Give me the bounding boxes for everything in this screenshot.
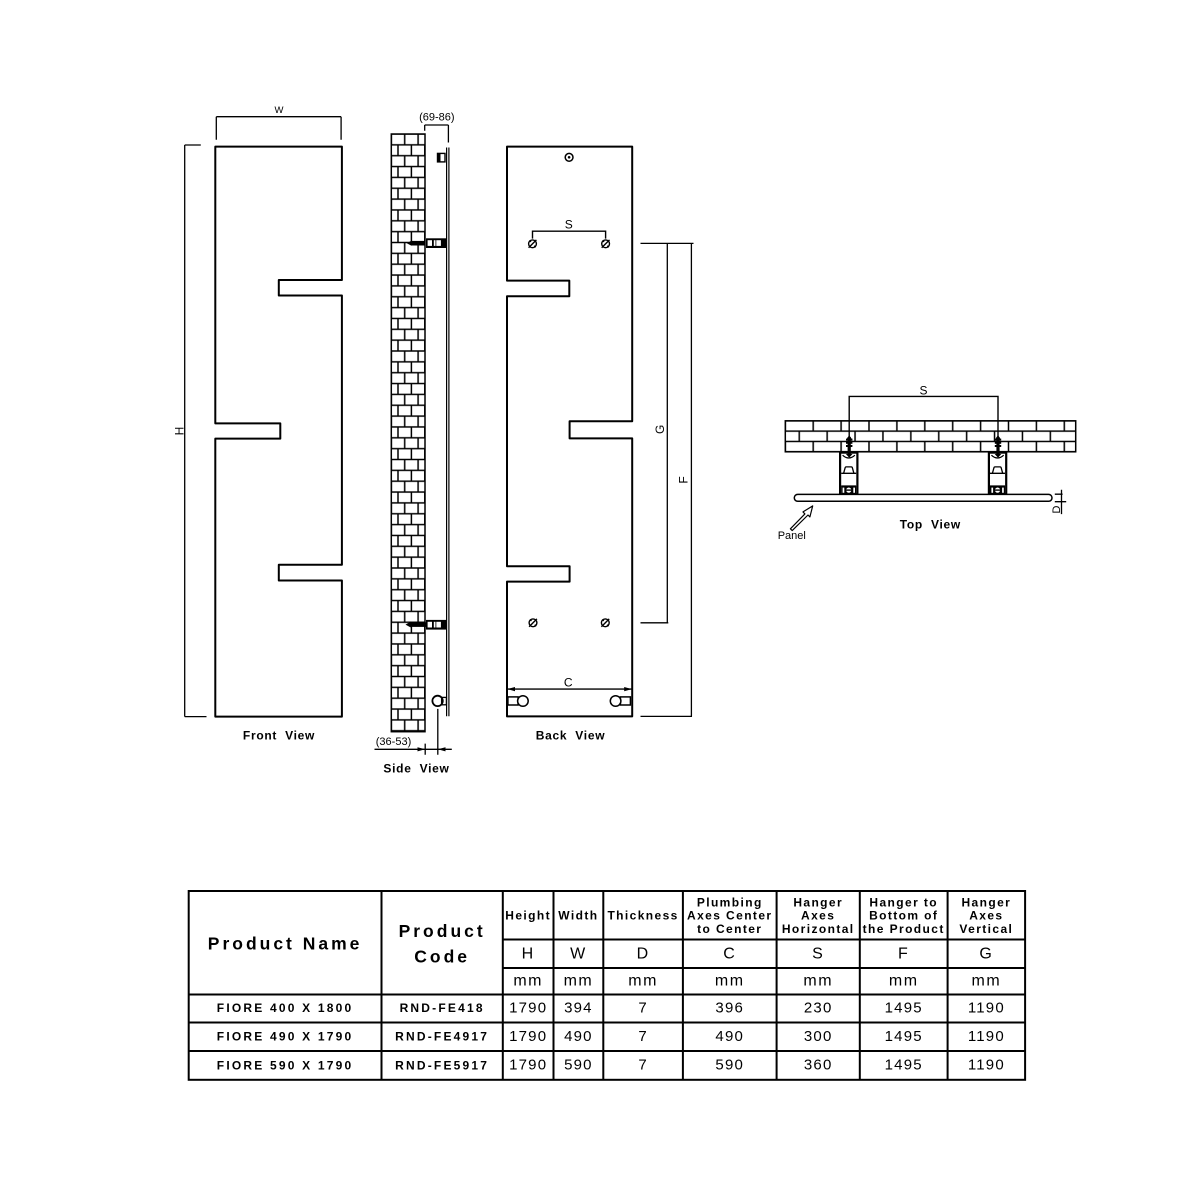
svg-text:1190: 1190 (968, 1028, 1005, 1045)
svg-text:FIORE 490 X 1790: FIORE 490 X 1790 (217, 1030, 354, 1044)
svg-text:Plumbing: Plumbing (697, 895, 763, 909)
svg-text:230: 230 (804, 999, 833, 1016)
svg-text:H: H (172, 427, 186, 436)
svg-text:300: 300 (804, 1028, 833, 1045)
svg-text:mm: mm (889, 973, 919, 990)
svg-text:(36-53): (36-53) (376, 736, 411, 748)
svg-text:G: G (979, 946, 993, 963)
svg-text:Axes Center: Axes Center (687, 909, 772, 923)
svg-text:1495: 1495 (885, 1057, 923, 1074)
svg-text:Axes: Axes (969, 909, 1003, 923)
svg-text:S: S (812, 946, 824, 963)
svg-text:360: 360 (804, 1057, 833, 1074)
svg-text:Hanger to: Hanger to (869, 895, 938, 909)
svg-text:mm: mm (803, 973, 833, 990)
svg-text:D: D (637, 946, 650, 963)
svg-text:490: 490 (715, 1028, 744, 1045)
svg-text:mm: mm (628, 973, 658, 990)
svg-text:S: S (919, 384, 927, 398)
svg-text:Horizontal: Horizontal (782, 922, 855, 936)
svg-text:1790: 1790 (509, 999, 547, 1016)
svg-text:Front View: Front View (243, 729, 315, 743)
svg-text:mm: mm (564, 973, 594, 990)
svg-text:RND-FE4917: RND-FE4917 (395, 1030, 489, 1044)
svg-text:RND-FE5917: RND-FE5917 (395, 1058, 489, 1072)
svg-text:mm: mm (715, 973, 745, 990)
svg-text:C: C (723, 946, 736, 963)
svg-text:Height: Height (505, 909, 551, 923)
svg-text:Code: Code (414, 947, 470, 967)
svg-text:590: 590 (564, 1057, 593, 1074)
svg-text:FIORE 400 X 1800: FIORE 400 X 1800 (217, 1001, 354, 1015)
svg-text:Product Name: Product Name (208, 933, 363, 953)
svg-text:1790: 1790 (509, 1028, 547, 1045)
svg-text:C: C (564, 675, 573, 689)
svg-text:S: S (565, 218, 573, 232)
svg-text:Hanger: Hanger (793, 895, 843, 909)
svg-text:7: 7 (638, 999, 648, 1016)
svg-text:(69-86): (69-86) (419, 112, 454, 124)
svg-text:490: 490 (564, 1028, 593, 1045)
svg-text:RND-FE418: RND-FE418 (400, 1001, 485, 1015)
svg-text:G: G (653, 425, 667, 434)
svg-text:Panel: Panel (778, 530, 806, 542)
svg-text:H: H (522, 946, 535, 963)
svg-text:590: 590 (715, 1057, 744, 1074)
svg-text:1495: 1495 (885, 1028, 923, 1045)
svg-text:Bottom of: Bottom of (869, 909, 938, 923)
svg-text:Back View: Back View (536, 729, 605, 743)
svg-text:F: F (676, 476, 690, 483)
svg-text:394: 394 (564, 999, 593, 1016)
svg-text:Thickness: Thickness (607, 909, 678, 923)
svg-text:the Product: the Product (863, 922, 945, 936)
svg-text:W: W (570, 946, 587, 963)
svg-text:mm: mm (972, 973, 1002, 990)
svg-text:396: 396 (715, 999, 744, 1016)
svg-text:Top View: Top View (900, 518, 961, 532)
svg-text:W: W (275, 105, 284, 116)
svg-text:F: F (898, 946, 909, 963)
svg-text:mm: mm (513, 973, 543, 990)
svg-text:Side View: Side View (383, 762, 449, 776)
svg-text:1790: 1790 (509, 1057, 547, 1074)
svg-text:7: 7 (638, 1057, 648, 1074)
svg-text:1190: 1190 (968, 999, 1005, 1016)
svg-text:Width: Width (558, 909, 598, 923)
svg-text:1190: 1190 (968, 1057, 1005, 1074)
svg-text:7: 7 (638, 1028, 648, 1045)
svg-text:Axes: Axes (801, 909, 835, 923)
svg-text:Vertical: Vertical (959, 922, 1013, 936)
svg-text:Hanger: Hanger (961, 895, 1011, 909)
svg-text:Product: Product (399, 921, 486, 941)
svg-text:to Center: to Center (697, 922, 762, 936)
svg-text:1495: 1495 (885, 999, 923, 1016)
svg-text:FIORE 590 X 1790: FIORE 590 X 1790 (217, 1058, 354, 1072)
svg-text:D: D (1051, 505, 1063, 513)
